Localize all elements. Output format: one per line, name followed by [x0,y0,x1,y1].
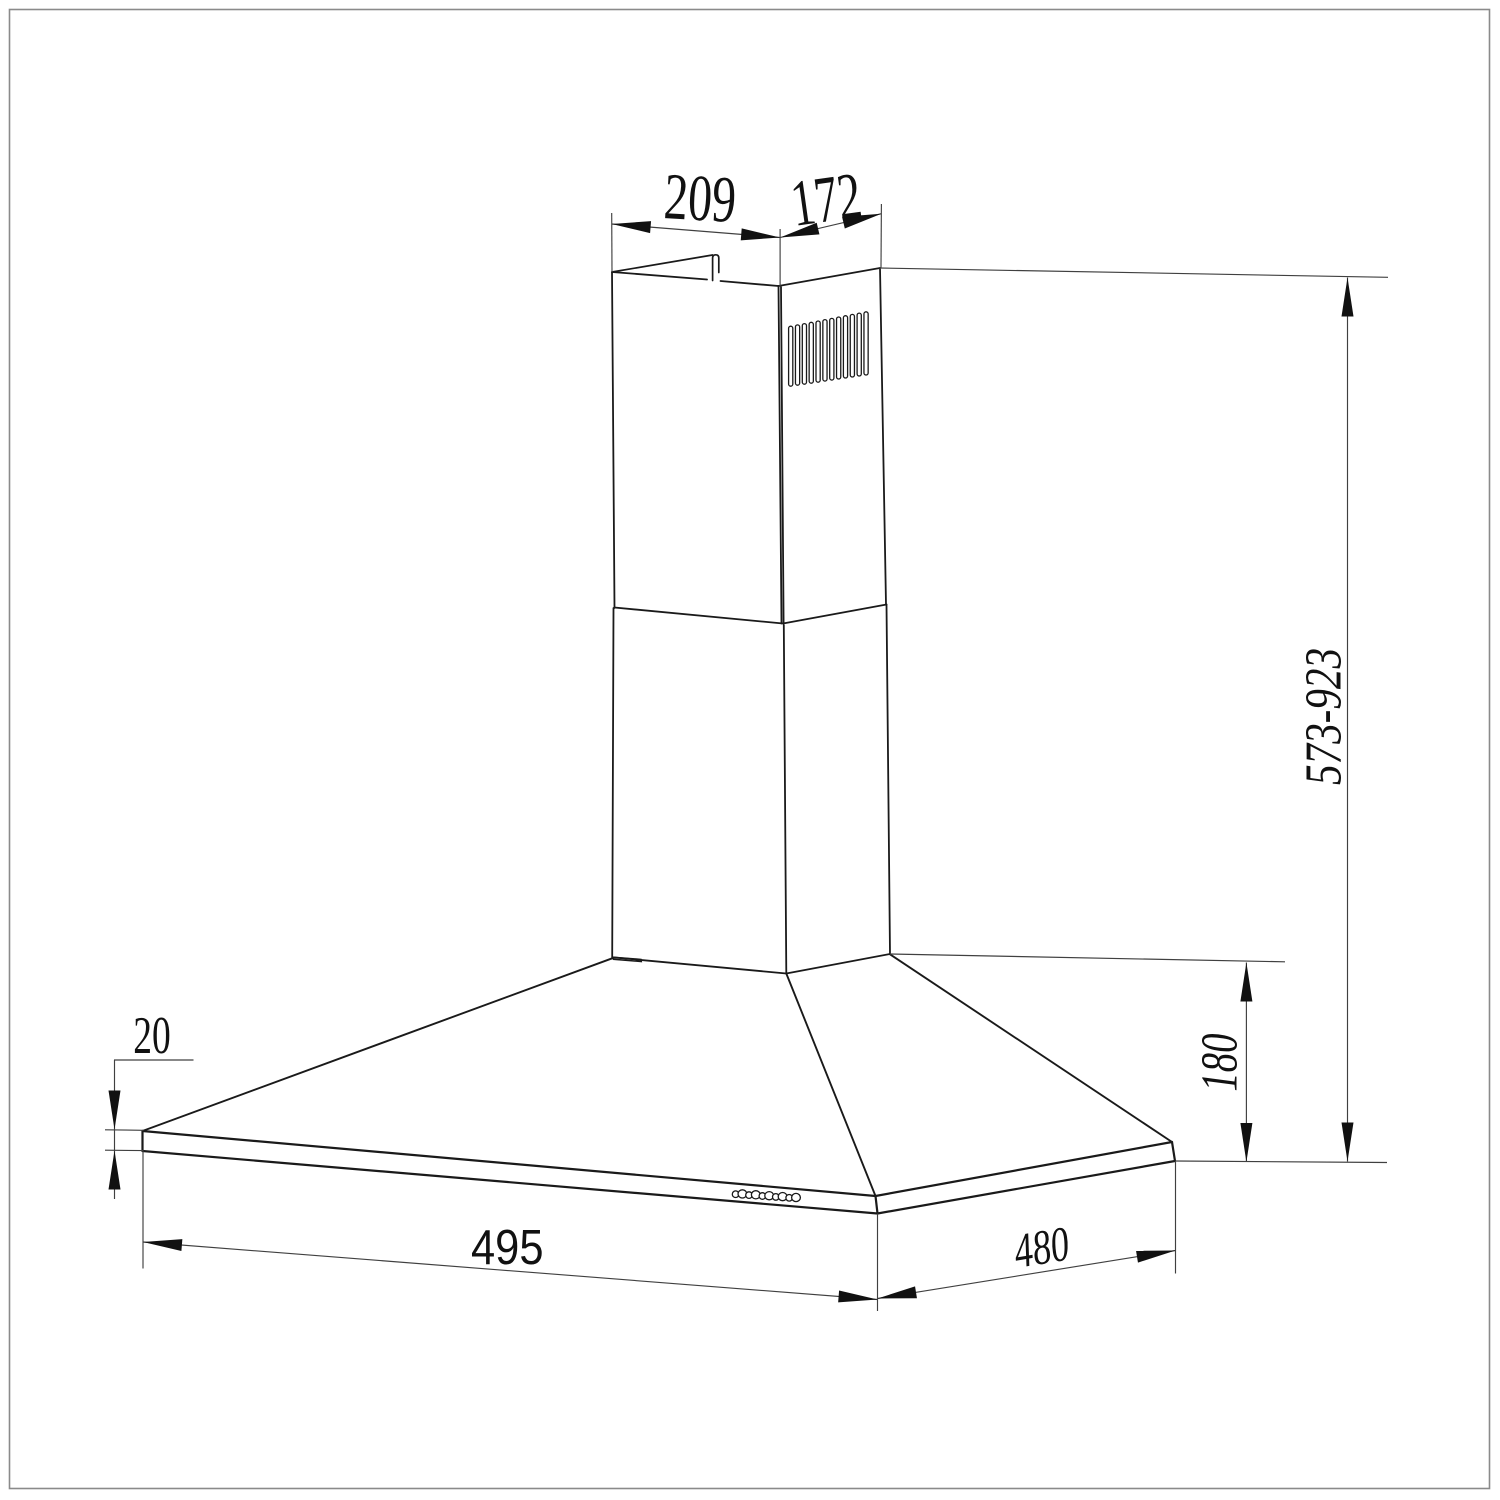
svg-text:172: 172 [786,159,865,241]
svg-text:480: 480 [1010,1216,1073,1279]
svg-text:20: 20 [133,1007,171,1065]
svg-text:573-923: 573-923 [1296,648,1353,785]
svg-text:495: 495 [471,1221,544,1275]
svg-text:209: 209 [662,160,738,237]
svg-text:180: 180 [1192,1034,1249,1092]
